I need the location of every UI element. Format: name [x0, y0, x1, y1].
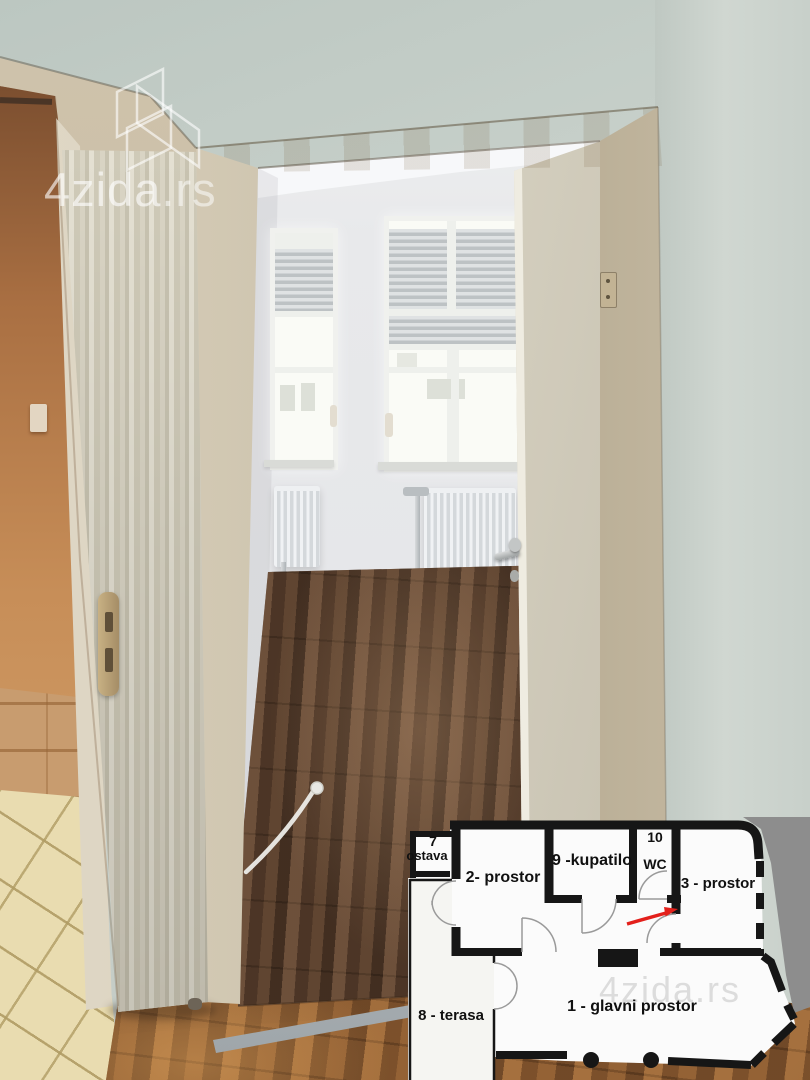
watermark-brand: 4zida — [44, 163, 161, 216]
plan-chimney — [598, 949, 638, 967]
watermark-text: 4zida.rs — [44, 162, 217, 217]
plan-label-room2: 2- prostor — [451, 870, 555, 887]
plan-label-wc: WC — [637, 857, 673, 872]
plan-column — [583, 1052, 599, 1068]
plan-label-wc-number: 10 — [637, 830, 673, 845]
plan-label-room3: 3 - prostor — [671, 876, 765, 892]
plan-column — [643, 1052, 659, 1068]
apartment-photo: 4zida.rs — [0, 0, 810, 1080]
plan-label-main-room: 1 - glavni prostor — [547, 999, 717, 1016]
watermark-tld: .rs — [161, 163, 216, 216]
plan-label-terrace: 8 - terasa — [409, 1008, 493, 1024]
plan-label-storage: ostava — [405, 849, 452, 863]
watermark: 4zida.rs — [38, 40, 298, 230]
plan-label-bathroom: 9 -kupatilo — [539, 853, 645, 870]
floorplan-overlay: 4zida.rs 7 ostava 2- prostor 9 -kupatilo… — [405, 817, 810, 1080]
4zida-logo-icon — [88, 48, 238, 173]
plan-label-storage-number: 7 — [419, 834, 447, 849]
